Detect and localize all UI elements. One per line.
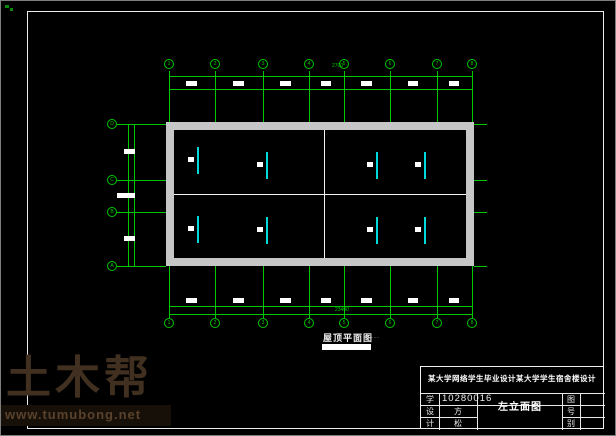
drawing-name: 左立面图 — [478, 398, 562, 413]
designer-name-1: 方 — [454, 406, 462, 417]
title-block-line — [439, 393, 440, 430]
drain-label-blob — [257, 227, 263, 232]
drain-symbol-icon — [197, 216, 199, 243]
field-label-category: 别 — [562, 418, 580, 429]
field-label-design: 设 — [421, 406, 439, 417]
title-block-header: 某大学网络学生毕业设计某大学学生宿舍楼设计 — [421, 373, 603, 384]
drain-label-blob — [188, 157, 194, 162]
drain-symbol-icon — [424, 217, 426, 244]
drain-label-blob — [367, 162, 373, 167]
drain-symbol-icon — [376, 217, 378, 244]
drawing-caption: 屋顶平面图 — [323, 331, 373, 344]
drain-label-blob — [188, 226, 194, 231]
drain-symbol-icon — [197, 147, 199, 174]
title-block-line — [580, 393, 581, 430]
caption-underline-bar — [322, 344, 371, 350]
title-block: 某大学网络学生毕业设计某大学学生宿舍楼设计 学 设 计 10280016 方 松… — [420, 366, 604, 429]
field-label-student: 学 — [421, 394, 439, 405]
drain-label-blob — [415, 227, 421, 232]
watermark-url: www.tumubong.net — [5, 407, 141, 422]
drain-label-blob — [367, 227, 373, 232]
field-label-sheet: 图 — [562, 394, 580, 405]
drain-symbol-icon — [266, 152, 268, 179]
drain-symbol-icon — [424, 152, 426, 179]
field-label-number: 号 — [562, 406, 580, 417]
drain-symbol-icon — [266, 217, 268, 244]
drawing-caption-scale: ··· — [371, 335, 380, 341]
field-label-design2: 计 — [421, 418, 439, 429]
cad-canvas: 1122334455667788360036003600360036003600… — [0, 0, 616, 436]
drain-label-blob — [415, 162, 421, 167]
designer-name-2: 松 — [454, 418, 462, 429]
drain-label-blob — [257, 162, 263, 167]
watermark-logo: 土木帮 — [6, 355, 153, 400]
drain-symbol-icon — [376, 152, 378, 179]
